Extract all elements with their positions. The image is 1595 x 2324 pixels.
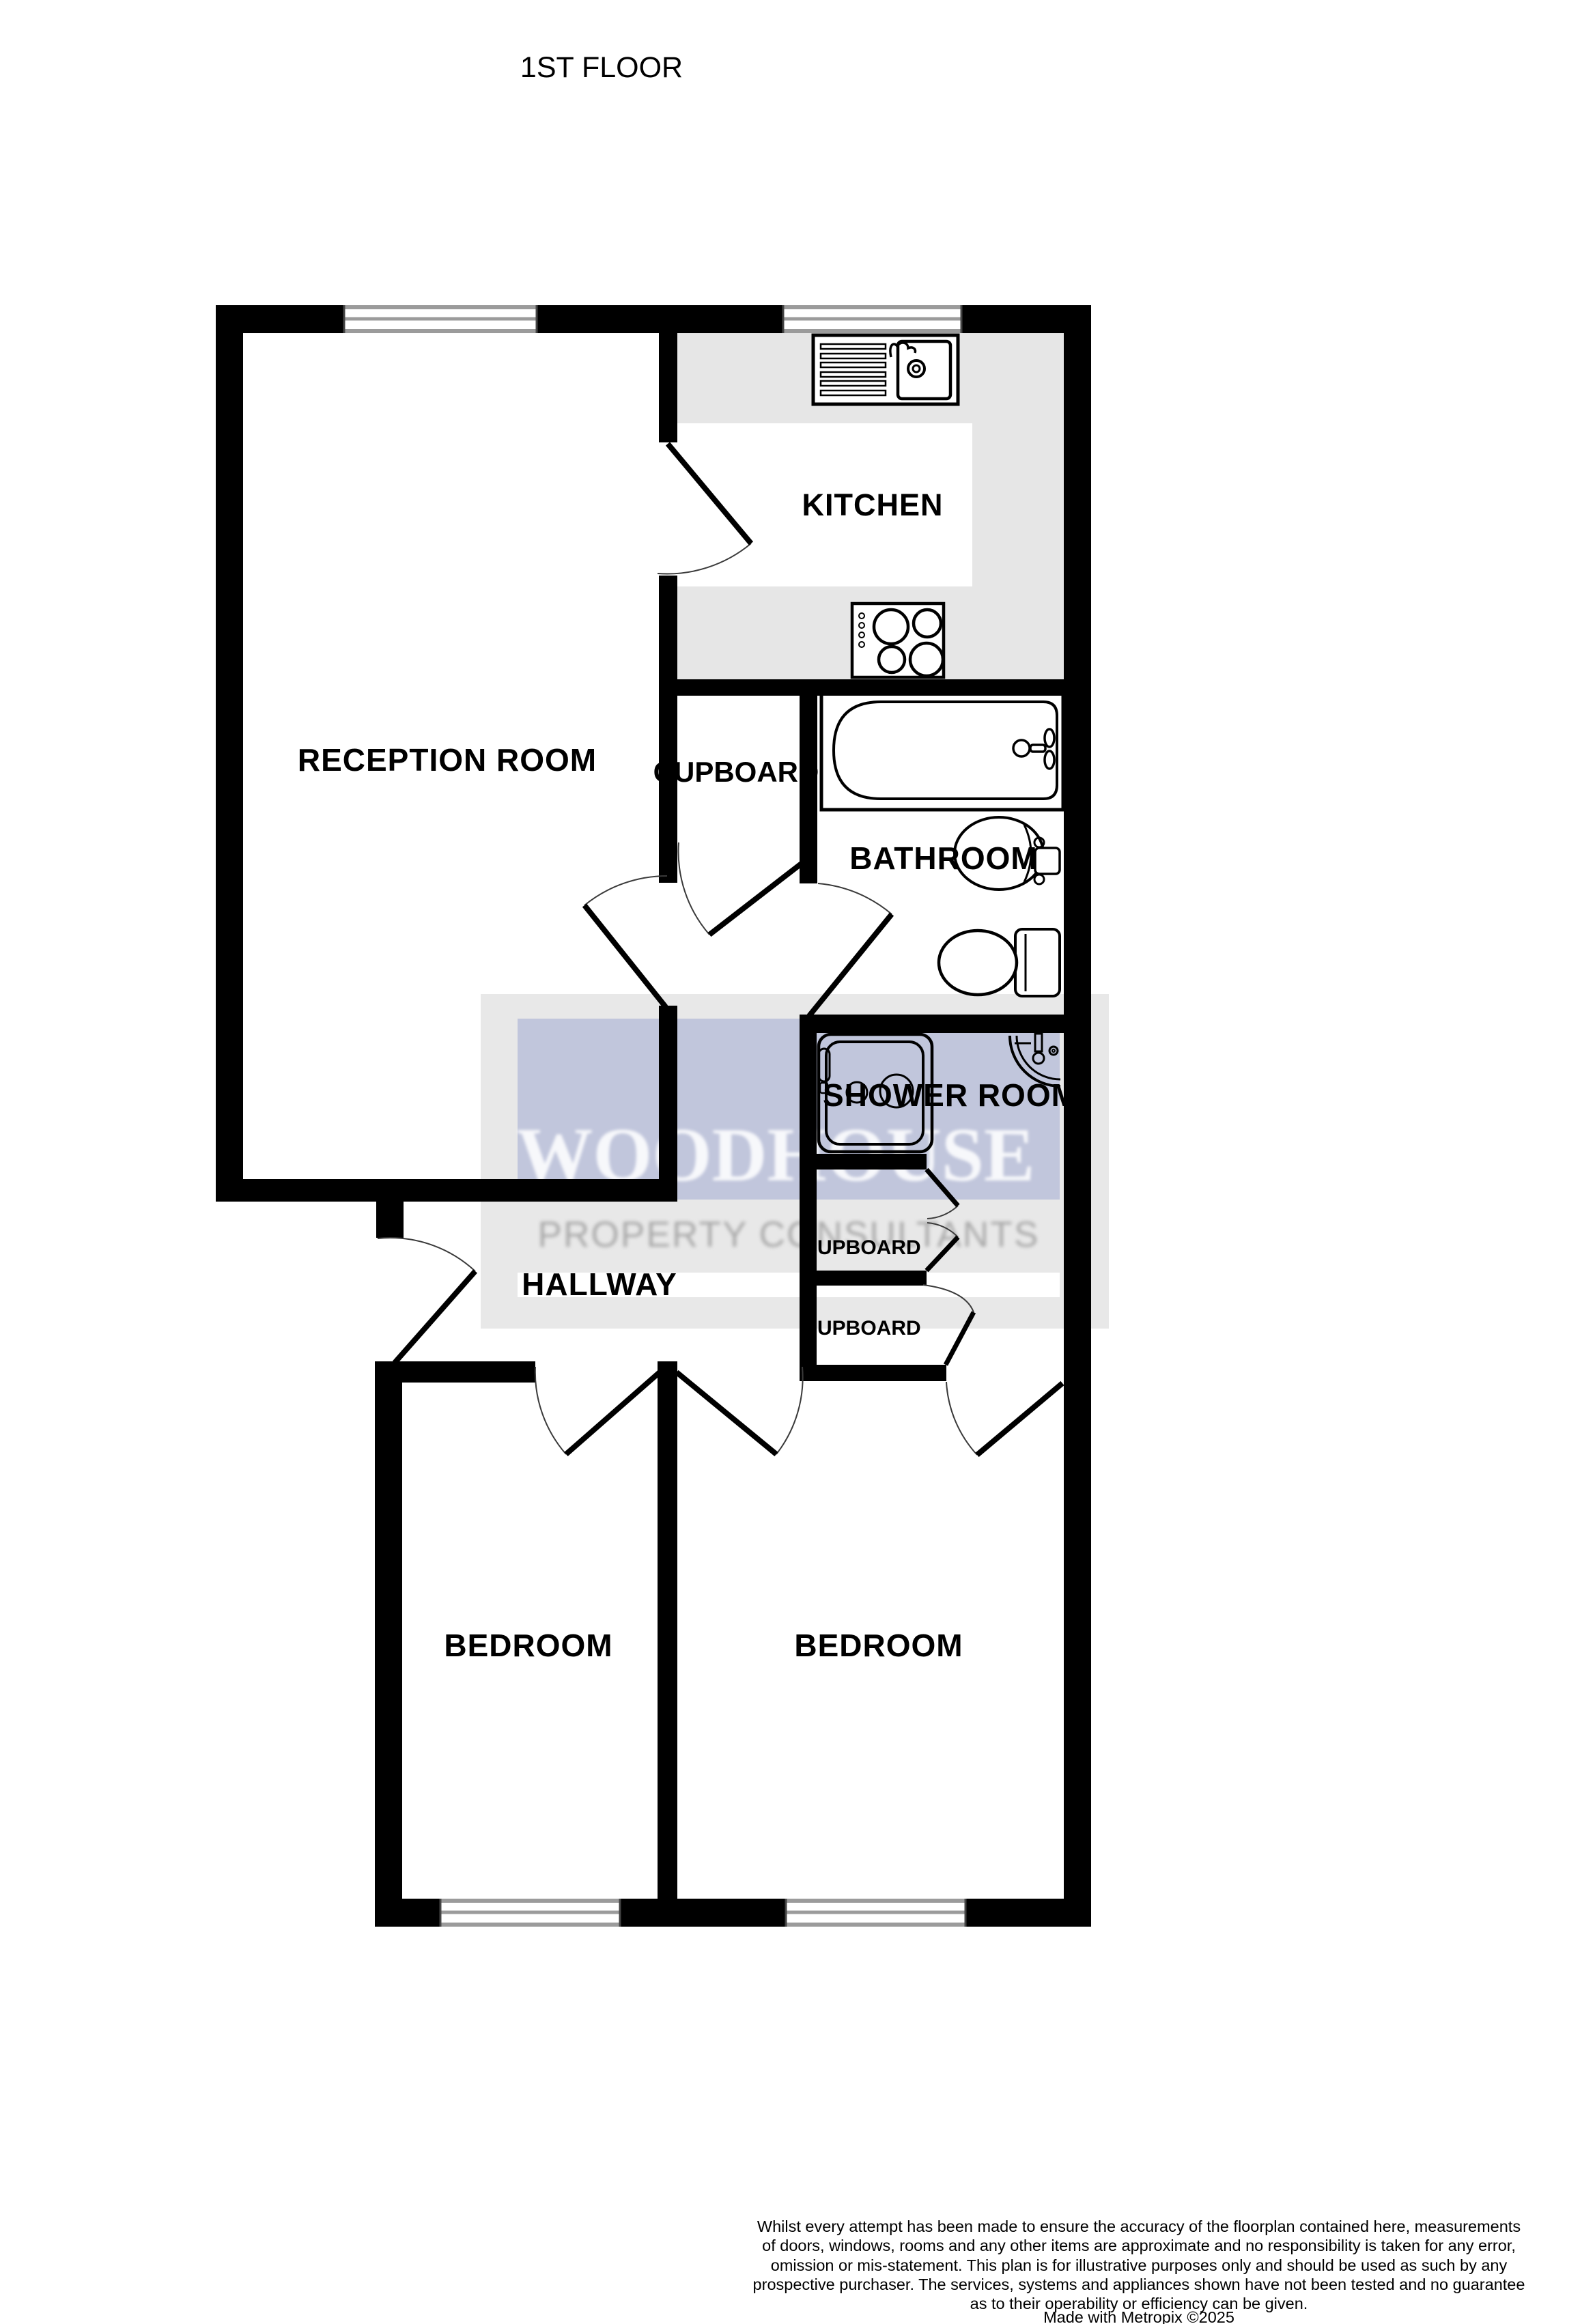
svg-text:Made with Metropix ©2025: Made with Metropix ©2025 <box>1043 2308 1234 2324</box>
svg-text:SHOWER ROOM: SHOWER ROOM <box>823 1077 1078 1113</box>
svg-text:CUPBOARD: CUPBOARD <box>802 1317 920 1340</box>
svg-text:HALLWAY: HALLWAY <box>522 1266 677 1302</box>
svg-text:BATHROOM: BATHROOM <box>849 840 1037 876</box>
svg-text:prospective purchaser. The ser: prospective purchaser. The services, sys… <box>753 2276 1525 2293</box>
svg-text:omission or mis-statement. Thi: omission or mis-statement. This plan is … <box>771 2256 1508 2274</box>
svg-text:1ST FLOOR: 1ST FLOOR <box>520 51 683 84</box>
svg-text:RECEPTION ROOM: RECEPTION ROOM <box>298 742 597 778</box>
svg-text:of doors, windows, rooms and a: of doors, windows, rooms and any other i… <box>762 2237 1516 2254</box>
svg-text:PROPERTY CONSULTANTS: PROPERTY CONSULTANTS <box>537 1215 1039 1255</box>
svg-text:BEDROOM: BEDROOM <box>444 1628 612 1663</box>
svg-text:Whilst every attempt has been: Whilst every attempt has been made to en… <box>757 2217 1521 2235</box>
svg-text:BEDROOM: BEDROOM <box>794 1628 963 1663</box>
svg-text:KITCHEN: KITCHEN <box>802 487 944 522</box>
svg-text:CUPBOARD: CUPBOARD <box>653 756 819 788</box>
svg-text:CUPBOARD: CUPBOARD <box>802 1236 920 1259</box>
